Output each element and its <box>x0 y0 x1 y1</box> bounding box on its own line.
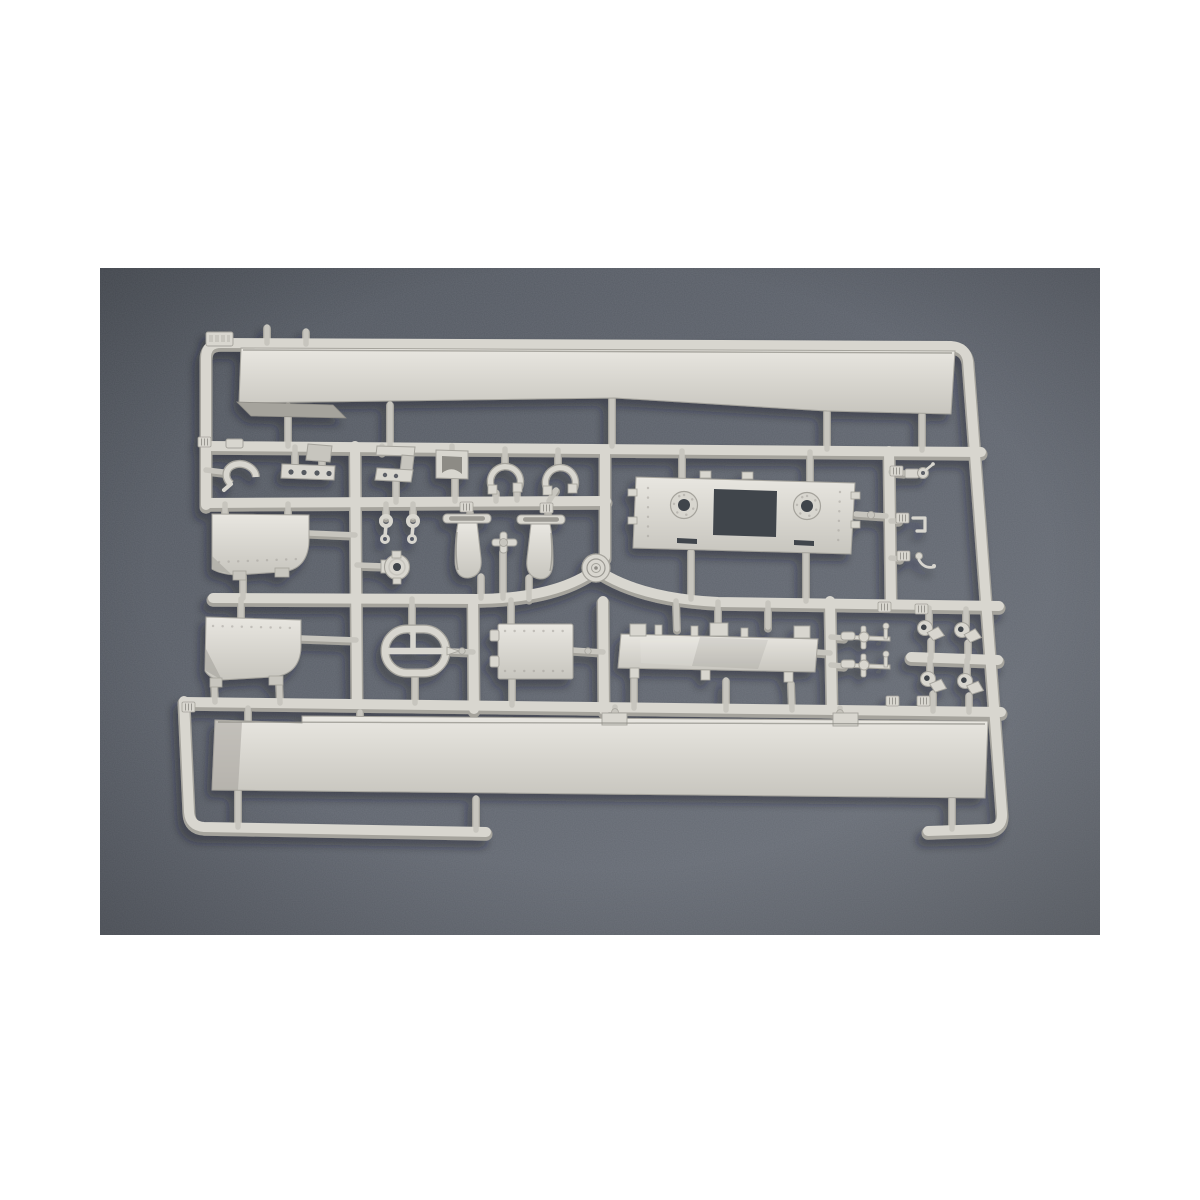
small-plate <box>306 444 332 462</box>
drilled-strip <box>281 464 335 480</box>
ring-opening-left <box>671 492 698 519</box>
moulding-tag <box>206 332 233 346</box>
saddle-channel <box>436 450 468 479</box>
hatch-door <box>490 624 573 679</box>
deck-plate-cutout <box>713 489 777 537</box>
ring-opening-right <box>794 493 821 520</box>
page <box>0 0 1200 1200</box>
deck-plate <box>628 471 860 554</box>
photo <box>100 268 1100 935</box>
photo-canvas <box>0 0 1200 1200</box>
hub-cap-disc <box>582 554 610 582</box>
lower-side-panel <box>212 713 988 798</box>
angle-clip <box>226 439 243 448</box>
